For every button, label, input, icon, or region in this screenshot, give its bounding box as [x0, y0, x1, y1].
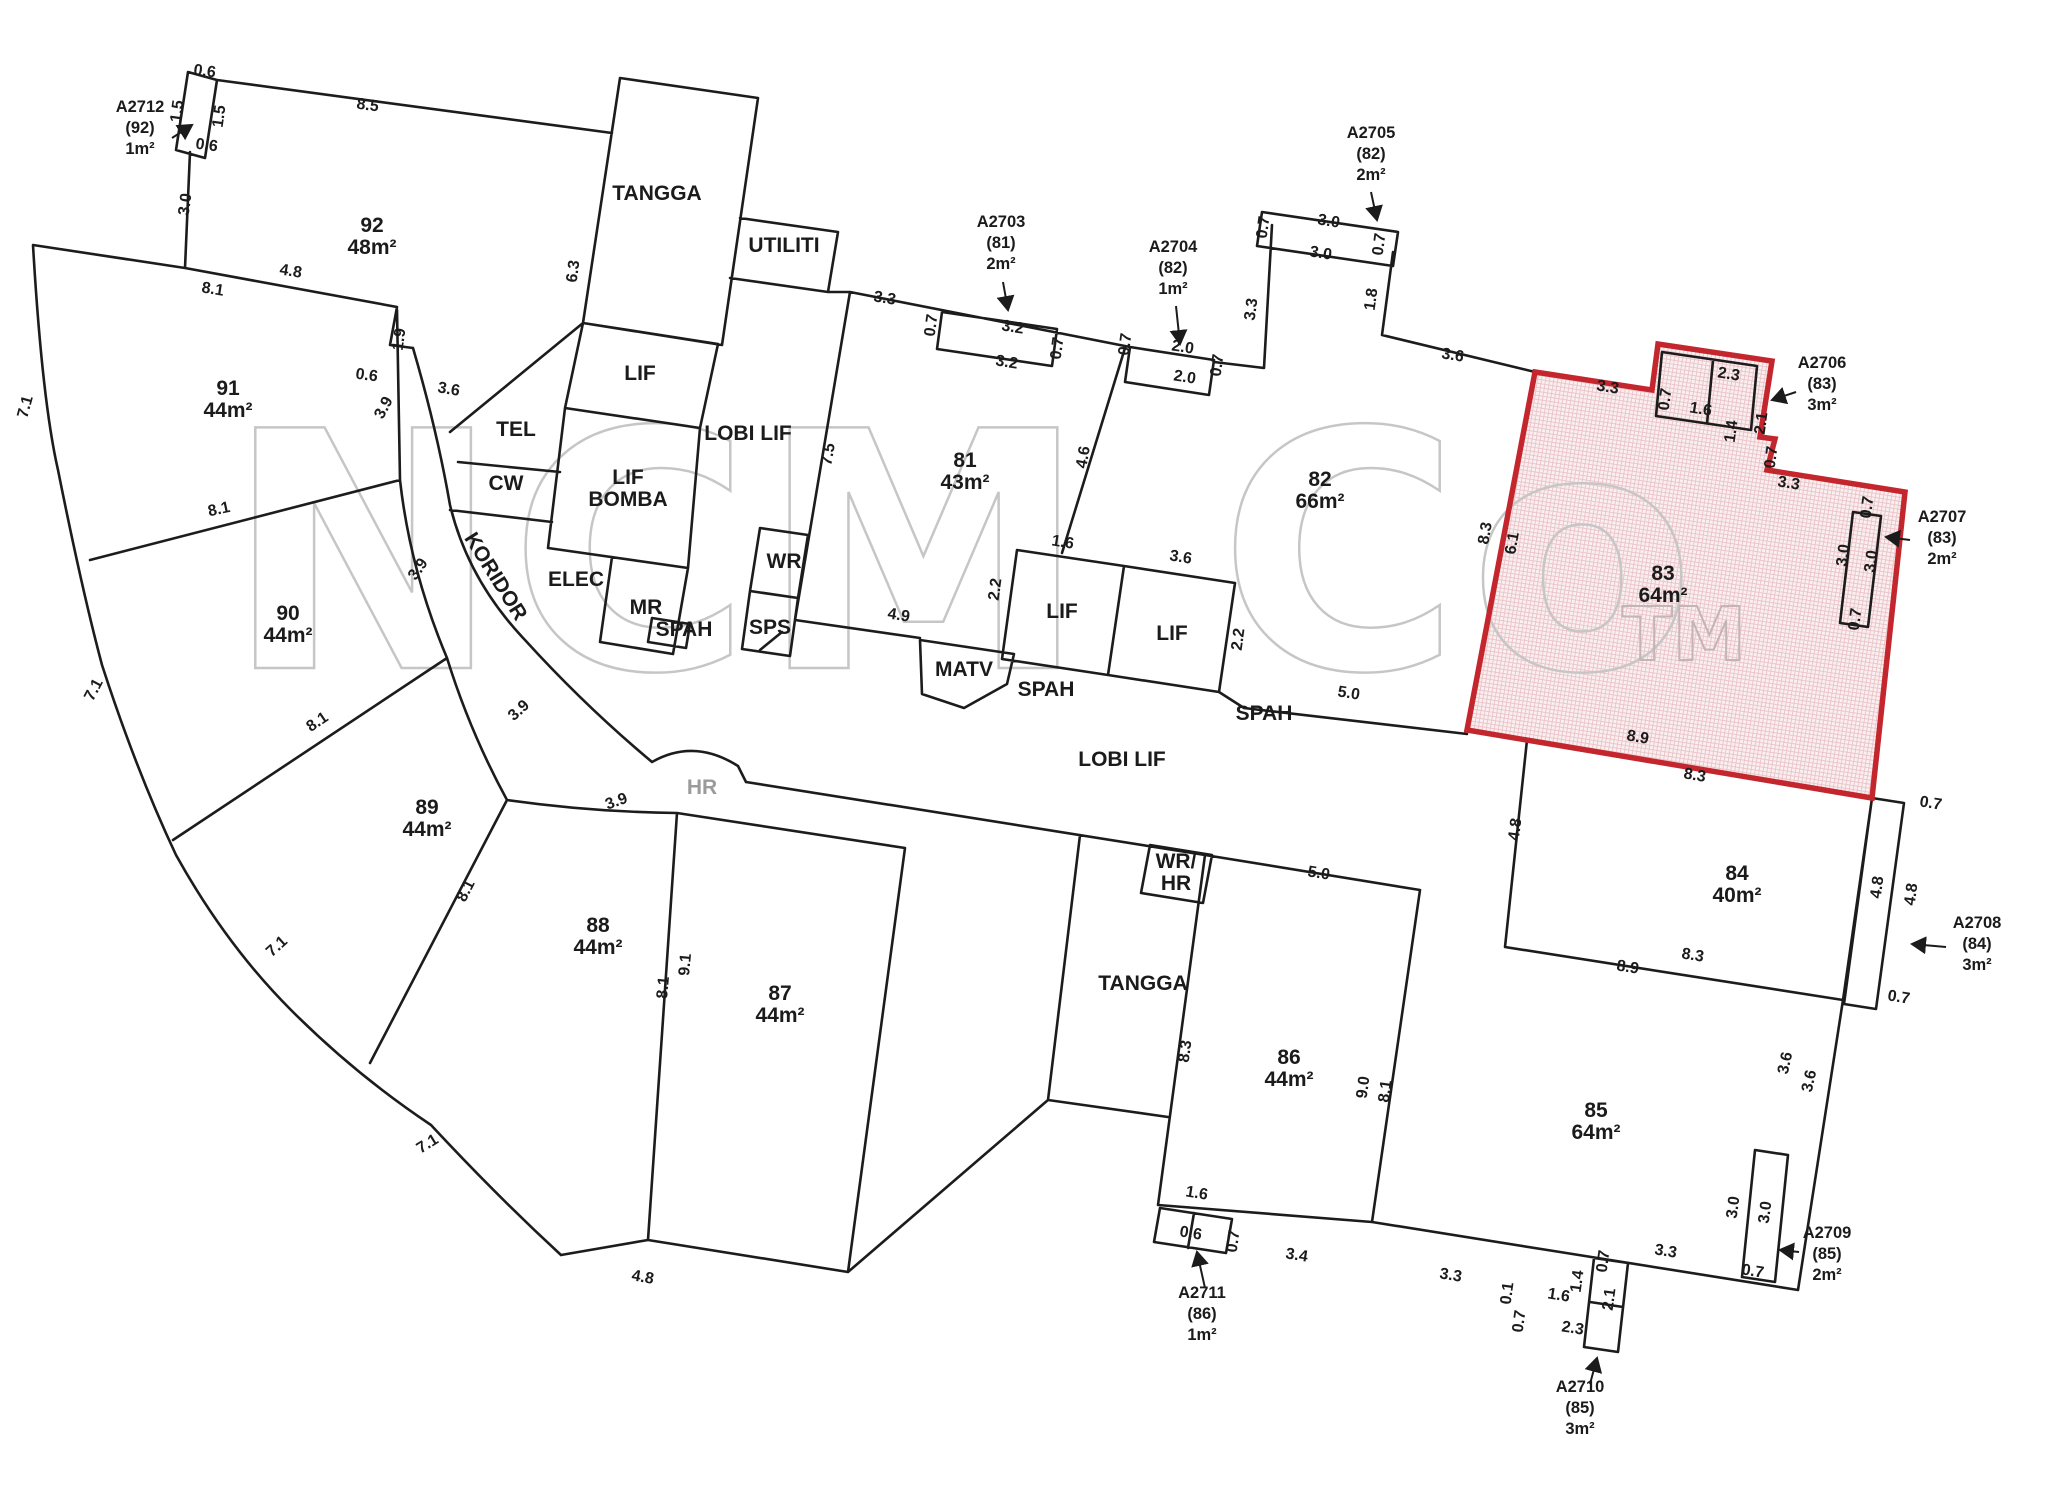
dim-label: 8.3: [1680, 945, 1705, 965]
dim-label: 8.3: [1176, 1039, 1196, 1063]
dim-label: 3.3: [1438, 1265, 1463, 1285]
dim-label: 3.6: [1168, 547, 1193, 567]
annotation-label: (82): [1356, 145, 1385, 163]
unit-label: 83: [1651, 562, 1674, 585]
annotation-arrow: [1371, 192, 1377, 220]
annotation-arrow: [1772, 392, 1796, 400]
dim-label: 0.7: [1846, 607, 1866, 631]
annotation-label: (82): [1158, 259, 1187, 277]
dim-label: 8.1: [453, 877, 478, 905]
dim-label: 1.5: [168, 99, 188, 123]
dim-label: 3.0: [176, 192, 196, 216]
dim-label: 3.6: [1799, 1068, 1820, 1093]
dim-label: 1.6: [1688, 399, 1713, 419]
room-name: BOMBA: [588, 488, 667, 511]
dim-label: 3.0: [1308, 243, 1333, 263]
unit-area-label: 44m²: [1264, 1068, 1313, 1091]
room-name: HR: [687, 776, 717, 799]
dim-label: 7.1: [263, 933, 291, 961]
unit-label: 86: [1277, 1046, 1300, 1069]
annotation-label: 2m²: [1356, 166, 1386, 184]
annotation-label: (84): [1962, 935, 1991, 953]
annotation-label: 1m²: [1158, 280, 1188, 298]
annotation-label: 3m²: [1807, 396, 1837, 414]
dim-label: 3.3: [872, 288, 897, 308]
dim-label: 3.4: [1284, 1245, 1309, 1265]
unit-area-label: 44m²: [755, 1004, 804, 1027]
annotation-label: (85): [1812, 1245, 1841, 1263]
unit-label: 92: [360, 214, 383, 237]
dim-label: 7.1: [414, 1131, 442, 1157]
dim-label: 0.7: [1656, 387, 1676, 411]
room-name: WR/: [1156, 850, 1197, 873]
unit-area-label: 48m²: [347, 236, 396, 259]
dim-label: 3.6: [1775, 1050, 1796, 1075]
annotation-label: (92): [125, 119, 154, 137]
room-name: SPAH: [1018, 678, 1075, 701]
dim-label: 0.7: [922, 313, 942, 337]
dim-label: 3.3: [1595, 377, 1620, 397]
dim-label: 0.7: [1762, 445, 1782, 469]
unit-area-label: 44m²: [203, 399, 252, 422]
annotation-label: A2704: [1149, 238, 1198, 256]
unit-area-label: 66m²: [1295, 490, 1344, 513]
unit-label: 85: [1584, 1099, 1608, 1122]
room-name: SPAH: [656, 618, 713, 641]
dim-label: 8.9: [1615, 957, 1640, 977]
unit-label: 89: [415, 796, 438, 819]
annotation-label: A2711: [1178, 1284, 1226, 1302]
unit-area-label: 44m²: [263, 624, 312, 647]
dim-label: 0.7: [1740, 1261, 1765, 1281]
annotation-label: A2710: [1556, 1378, 1605, 1396]
dim-label: 0.6: [354, 366, 378, 386]
dim-label: 4.8: [1506, 817, 1526, 841]
dim-label: 4.8: [278, 261, 303, 281]
dim-label: 3.0: [1724, 1195, 1744, 1219]
room-name: SPS: [749, 616, 791, 639]
room-name: TEL: [496, 418, 536, 441]
annotation-arrow: [172, 125, 192, 138]
annotation-arrow: [1197, 1252, 1205, 1288]
annotation-arrow: [1003, 282, 1008, 310]
unit-label: 87: [768, 982, 791, 1005]
annotation-label: A2708: [1953, 914, 2002, 932]
annotation-label: 2m²: [1927, 550, 1957, 568]
room-name: HR: [1161, 872, 1191, 895]
dim-label: 3.0: [1316, 211, 1341, 231]
dim-label: 2.2: [986, 577, 1006, 601]
room-name: LOBI LIF: [704, 422, 792, 445]
annotation-label: 1m²: [125, 140, 155, 158]
dim-label: 8.5: [355, 96, 379, 116]
dim-label: 1.8: [1362, 287, 1382, 311]
dim-label: 0.7: [1224, 1229, 1244, 1253]
dim-label: 0.6: [194, 136, 218, 156]
unit-label: 91: [216, 377, 240, 400]
dim-label: 8.1: [200, 279, 225, 299]
dim-label: 7.1: [15, 394, 37, 420]
annotation-label: A2706: [1798, 354, 1847, 372]
annotation-label: A2703: [977, 213, 1026, 231]
annotation-arrow: [1912, 944, 1946, 947]
floor-plan-page: NCM Co TM 9248m²9144m²9044m²8944m²8844m²…: [0, 0, 2048, 1497]
unit-label: 81: [953, 449, 977, 472]
unit-label: 84: [1725, 862, 1749, 885]
unit-label: 88: [586, 914, 610, 937]
dim-label: 2.1: [1600, 1287, 1620, 1311]
dim-label: 3.2: [994, 352, 1019, 372]
unit-area-label: 44m²: [573, 936, 622, 959]
dim-label: 1.4: [1722, 419, 1742, 443]
dim-label: 1.9: [390, 327, 410, 351]
room-name: LIF: [1156, 622, 1188, 645]
annotation-label: (86): [1187, 1305, 1216, 1323]
room-name: TANGGA: [1098, 972, 1187, 995]
dim-label: 1.5: [210, 104, 230, 128]
dim-label: 3.0: [1862, 549, 1882, 573]
room-name: MR: [630, 596, 663, 619]
dim-label: 7.1: [81, 676, 106, 704]
unit-area-label: 44m²: [402, 818, 451, 841]
dim-label: 4.8: [1868, 875, 1888, 899]
dim-label: 0.7: [1370, 232, 1390, 256]
dim-label: 1.6: [1184, 1183, 1209, 1203]
annotation-label: A2705: [1347, 124, 1396, 142]
annotation-label: A2712: [116, 98, 165, 116]
room-name: CW: [489, 472, 524, 495]
dim-label: 0.7: [1886, 987, 1911, 1007]
room-name: ELEC: [548, 568, 604, 591]
dim-label: 2.2: [1229, 627, 1249, 651]
room-name: TANGGA: [612, 182, 701, 205]
dim-label: 0.1: [1498, 1281, 1518, 1305]
dim-label: 3.6: [1440, 345, 1465, 365]
dim-label: 2.3: [1716, 364, 1741, 384]
dim-label: 3.3: [1242, 297, 1262, 321]
annotation-label: 2m²: [1812, 1266, 1842, 1284]
floor-plan-svg: NCM Co TM 9248m²9144m²9044m²8944m²8844m²…: [0, 0, 2048, 1497]
dim-label: 8.1: [654, 976, 673, 1000]
dim-label: 4.8: [1902, 882, 1922, 906]
dim-label: 0.7: [1254, 215, 1274, 239]
dim-label: 2.0: [1172, 367, 1197, 387]
dim-label: 2.0: [1170, 337, 1195, 357]
annotation-label: (83): [1927, 529, 1956, 547]
dim-label: 0.7: [1858, 495, 1878, 519]
annotation-label: (81): [986, 234, 1015, 252]
annotation-label: 2m²: [986, 255, 1016, 273]
unit-area-label: 43m²: [940, 471, 989, 494]
dim-label: 3.3: [1653, 1241, 1678, 1261]
room-name: LIF: [612, 466, 644, 489]
annotation-label: A2707: [1918, 508, 1967, 526]
dim-label: 0.7: [1918, 793, 1943, 813]
annotation-label: 3m²: [1565, 1420, 1595, 1438]
annotation-label: 3m²: [1962, 956, 1992, 974]
dim-label: 0.6: [192, 62, 216, 82]
dim-label: 0.7: [1116, 332, 1136, 356]
room-name: MATV: [935, 658, 993, 681]
dim-label: 1.4: [1568, 1269, 1588, 1293]
unit-label: 90: [276, 602, 299, 625]
dim-label: 8.3: [1682, 765, 1707, 786]
annotation-label: A2709: [1803, 1224, 1852, 1242]
room-name: LIF: [1046, 600, 1078, 623]
unit-area-label: 40m²: [1712, 884, 1761, 907]
dim-label: 0.6: [1178, 1223, 1203, 1243]
dim-label: 1.6: [1050, 532, 1075, 552]
dim-label: 0.7: [1594, 1249, 1614, 1273]
dim-label: 6.3: [564, 259, 584, 283]
unit-label: 82: [1308, 468, 1331, 491]
room-name: LOBI LIF: [1078, 748, 1166, 771]
dim-label: 4.9: [886, 605, 911, 625]
annotation-arrow: [1780, 1250, 1799, 1252]
dim-label: 3.9: [603, 790, 630, 814]
unit-area-label: 64m²: [1638, 584, 1687, 607]
room-name: WR: [767, 550, 802, 573]
dim-label: 3.2: [1000, 317, 1025, 337]
room-name: UTILITI: [748, 234, 819, 257]
dim-label: 3.0: [1756, 1200, 1776, 1224]
dim-label: 5.0: [1336, 683, 1361, 703]
dim-label: 5.0: [1306, 863, 1331, 883]
dim-label: 3.3: [1776, 473, 1801, 493]
annotation-label: 1m²: [1187, 1326, 1217, 1344]
dim-label: 0.7: [1510, 1309, 1530, 1333]
room-name: LIF: [624, 362, 656, 385]
dim-label: 9.0: [1354, 1075, 1374, 1099]
watermark-text: NCM Co: [225, 362, 1704, 746]
dim-label: 2.3: [1560, 1318, 1585, 1338]
unit-area-label: 64m²: [1571, 1121, 1620, 1144]
room-name: SPAH: [1236, 702, 1293, 725]
dim-label: 0.7: [1208, 353, 1228, 377]
dim-label: 3.0: [1834, 543, 1854, 567]
annotation-label: (85): [1565, 1399, 1594, 1417]
dim-label: 0.7: [1048, 336, 1068, 360]
dim-label: 9.1: [676, 953, 695, 977]
annotation-label: (83): [1807, 375, 1836, 393]
dim-label: 4.8: [630, 1267, 655, 1288]
dim-label: 2.1: [1752, 411, 1772, 435]
dim-label: 8.1: [1376, 1079, 1396, 1103]
